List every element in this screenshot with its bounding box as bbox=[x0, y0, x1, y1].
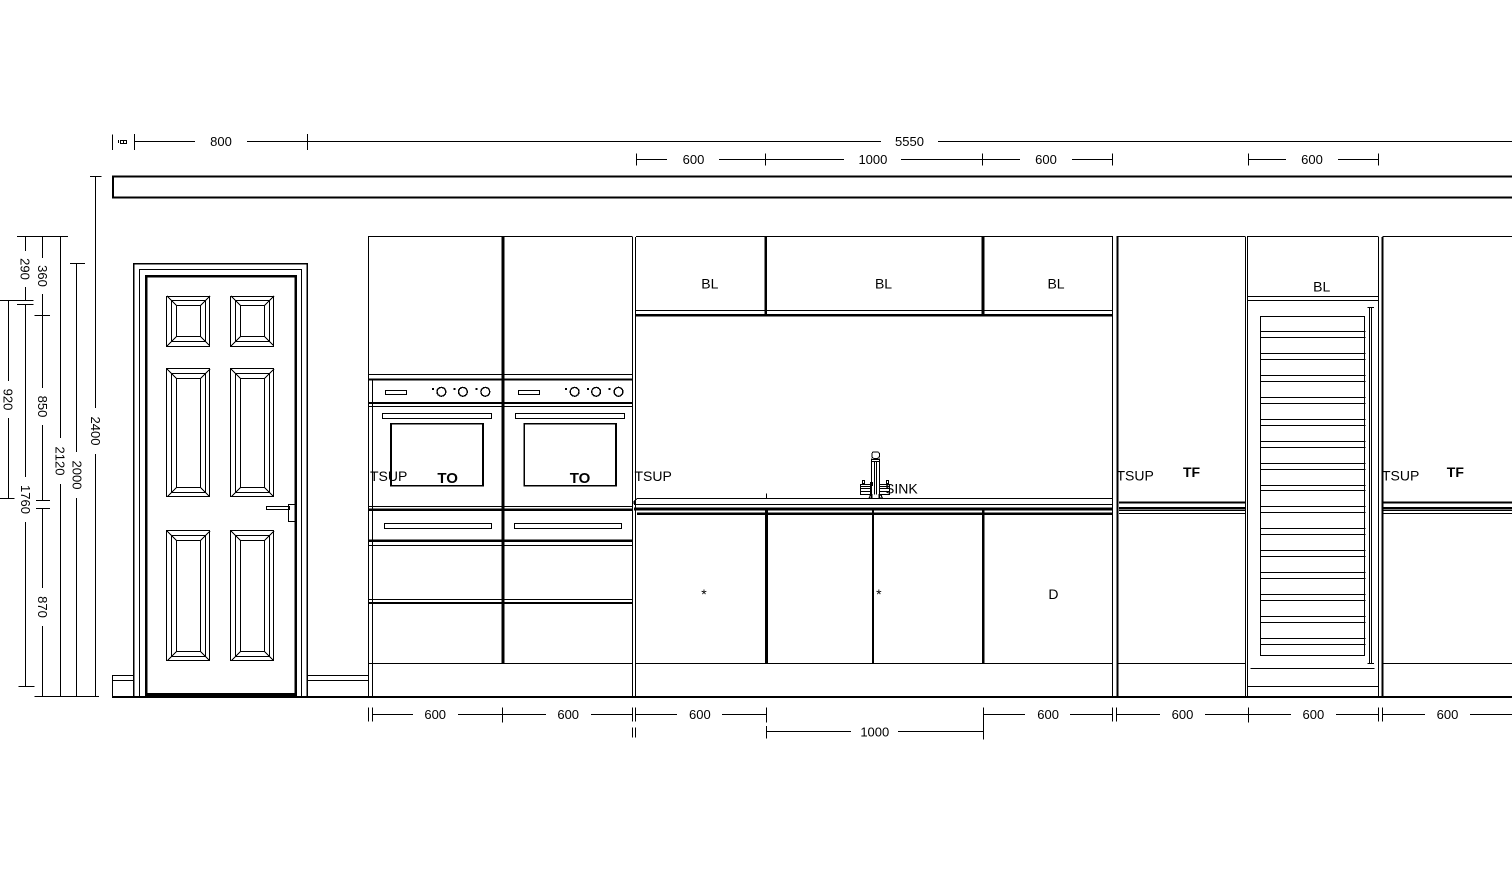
svg-text:600: 600 bbox=[424, 707, 446, 722]
svg-text:600: 600 bbox=[557, 707, 579, 722]
svg-text:800: 800 bbox=[210, 134, 232, 149]
svg-text:2400: 2400 bbox=[88, 417, 103, 446]
svg-text:1000: 1000 bbox=[860, 724, 889, 739]
svg-text:TF: TF bbox=[1183, 464, 1201, 480]
svg-text:1760: 1760 bbox=[18, 485, 33, 514]
svg-text:600: 600 bbox=[1303, 707, 1325, 722]
svg-text:600: 600 bbox=[683, 152, 705, 167]
svg-text:TO: TO bbox=[437, 470, 458, 487]
svg-text:600: 600 bbox=[1301, 152, 1323, 167]
svg-text:870: 870 bbox=[35, 596, 50, 618]
svg-text:BL: BL bbox=[701, 275, 718, 291]
svg-text:TF: TF bbox=[1447, 464, 1465, 480]
svg-text:TSUP: TSUP bbox=[370, 468, 407, 484]
svg-text:BL: BL bbox=[875, 275, 892, 291]
svg-text:2120: 2120 bbox=[52, 447, 67, 476]
svg-text:SINK: SINK bbox=[885, 481, 918, 497]
svg-text:BL: BL bbox=[1313, 279, 1330, 295]
svg-text:920: 920 bbox=[0, 389, 15, 411]
svg-text:*: * bbox=[701, 586, 707, 602]
svg-text:600: 600 bbox=[1437, 707, 1459, 722]
svg-text:TSUP: TSUP bbox=[1382, 468, 1419, 484]
svg-text:TSUP: TSUP bbox=[1117, 468, 1154, 484]
svg-text:*: * bbox=[876, 586, 882, 602]
svg-text:TSUP: TSUP bbox=[635, 468, 672, 484]
svg-text:5550: 5550 bbox=[895, 134, 924, 149]
svg-text:600: 600 bbox=[1035, 152, 1057, 167]
svg-text:600: 600 bbox=[1037, 707, 1059, 722]
svg-text:D: D bbox=[1048, 586, 1058, 602]
svg-text:1000: 1000 bbox=[858, 152, 887, 167]
svg-text:850: 850 bbox=[35, 396, 50, 418]
svg-text:360: 360 bbox=[35, 265, 50, 287]
svg-text:600: 600 bbox=[689, 707, 711, 722]
svg-text:TO: TO bbox=[570, 470, 591, 487]
svg-text:290: 290 bbox=[18, 258, 33, 280]
svg-text:BL: BL bbox=[1047, 275, 1064, 291]
svg-text:600: 600 bbox=[1172, 707, 1194, 722]
svg-text:2000: 2000 bbox=[69, 461, 84, 490]
